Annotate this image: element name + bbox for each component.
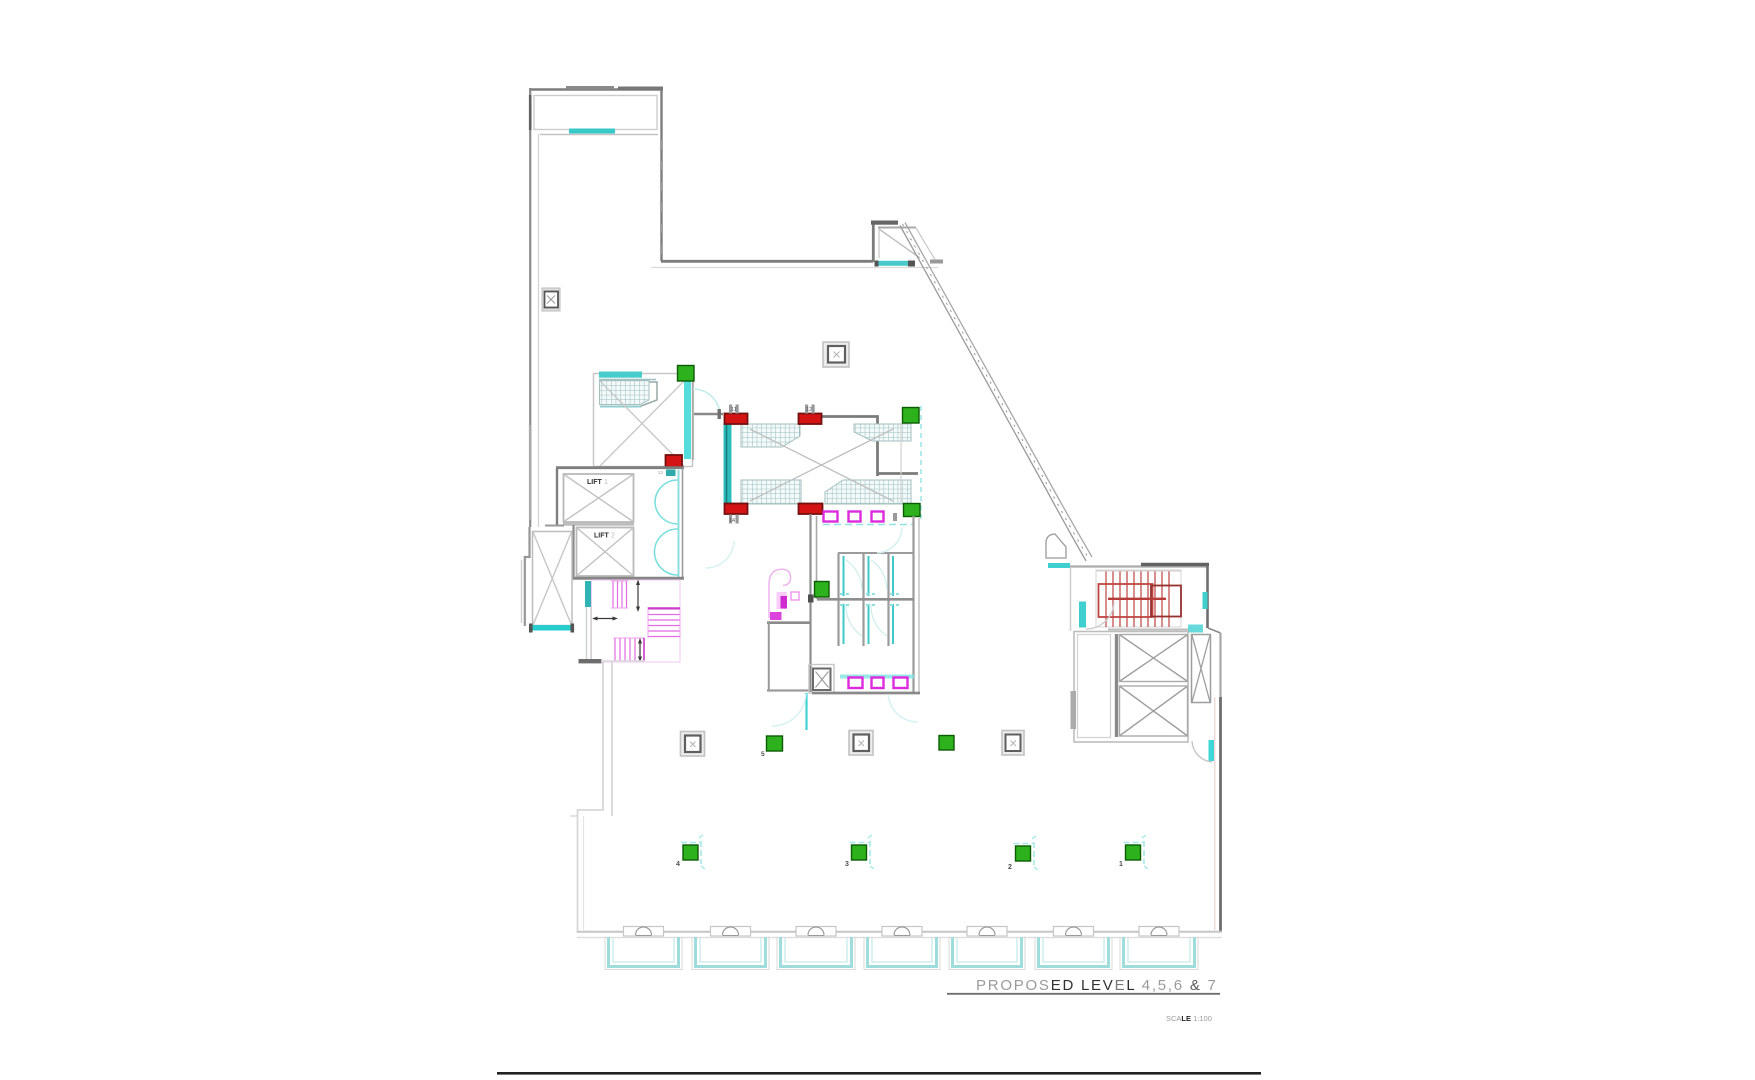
svg-text:12: 12 — [806, 407, 812, 413]
svg-text:1: 1 — [604, 479, 608, 486]
svg-text:2: 2 — [611, 533, 615, 540]
svg-text:2: 2 — [1008, 864, 1012, 871]
svg-text:14: 14 — [729, 518, 735, 524]
svg-text:3: 3 — [845, 861, 849, 868]
svg-text:LIFT: LIFT — [587, 479, 602, 486]
svg-text:1: 1 — [1119, 861, 1123, 868]
svg-text:SCALE 1:100: SCALE 1:100 — [1166, 1014, 1212, 1023]
svg-text:11: 11 — [731, 407, 737, 413]
svg-text:LIFT: LIFT — [594, 533, 609, 540]
svg-text:4: 4 — [676, 861, 680, 868]
svg-text:PROPOSED LEVEL 4,5,6 & 7: PROPOSED LEVEL 4,5,6 & 7 — [976, 977, 1218, 994]
svg-text:5: 5 — [761, 751, 765, 758]
svg-text:13: 13 — [658, 470, 664, 475]
